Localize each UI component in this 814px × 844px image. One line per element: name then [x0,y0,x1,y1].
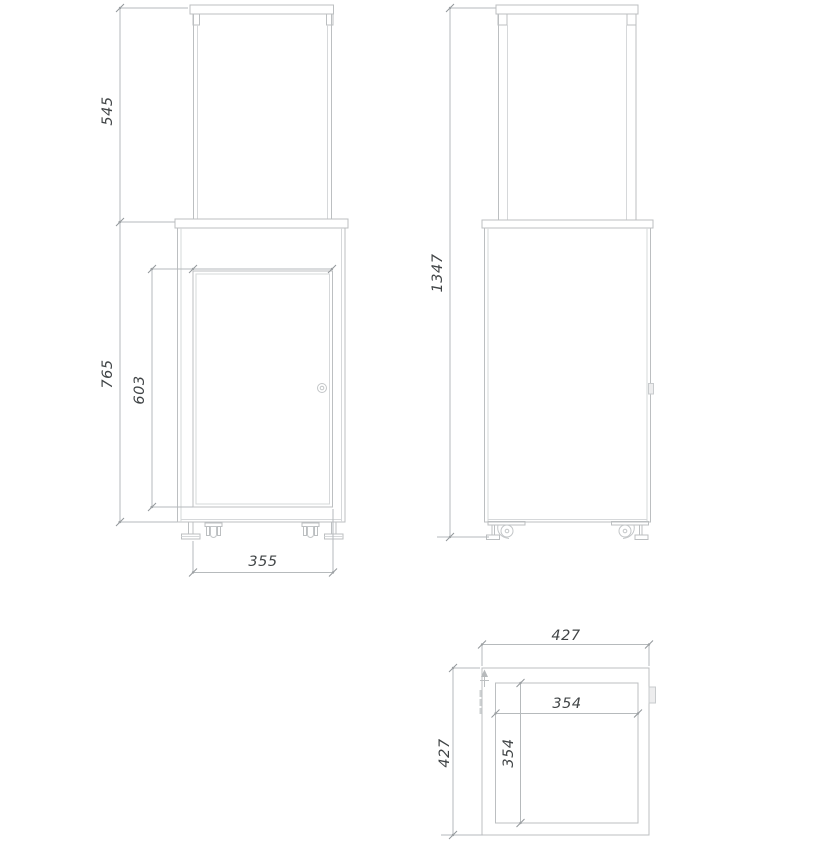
front-door-inner-outline [196,274,330,504]
side-glass-section [496,5,638,220]
side-glass-panel [499,14,637,220]
front-cabinet-body [178,228,346,522]
side-view [482,5,654,540]
caster-front-left [205,523,222,538]
caster-side-left [487,522,526,540]
dim-label-glass-height: 545 [100,96,116,125]
orthographic-drawing: 545 765 603 355 [0,0,814,844]
dim-label-body-height: 765 [100,359,116,388]
front-cabinet-top-slab [175,219,348,228]
side-hinge [649,384,654,395]
side-glass-post-front [498,14,507,25]
front-view [175,5,348,539]
caster-side-right [612,522,649,540]
side-glass-top-frame [496,5,638,14]
side-cabinet [482,220,654,522]
caster-front-right [302,523,319,538]
front-glass-post-right [327,14,334,25]
side-dimensions: 1347 [430,4,496,541]
dim-label-door-height: 603 [132,375,148,404]
front-door-outline [193,271,333,507]
dim-label-top-inner-depth: 354 [501,738,517,767]
dim-label-base-width: 355 [248,554,277,570]
side-cabinet-top-slab [482,220,653,228]
drawing-sheet: 545 765 603 355 [0,0,814,844]
front-door [193,271,333,507]
leveling-foot-left [182,522,201,539]
dim-label-total-height: 1347 [430,253,446,292]
door-lock-icon [318,384,327,393]
side-glass-post-back [627,14,636,25]
front-glass-panel [194,14,332,219]
top-hinge [649,687,656,703]
detail-arrow-icon [480,670,489,688]
page: { "drawing": { "type": "technical-orthog… [0,0,814,844]
front-glass-top-frame [190,5,334,14]
side-cabinet-body [485,228,651,522]
front-feet [182,522,344,539]
leveling-foot-right [325,522,344,539]
front-glass-section [190,5,334,219]
front-cabinet [175,219,348,522]
top-dimensions: 427 427 354 354 [437,628,653,839]
dim-label-top-inner-width: 354 [552,696,581,712]
dim-label-top-outer-depth: 427 [437,738,453,767]
front-dimensions: 545 765 603 355 [100,4,337,577]
side-feet [487,522,649,540]
dim-label-top-outer-width: 427 [551,628,580,644]
